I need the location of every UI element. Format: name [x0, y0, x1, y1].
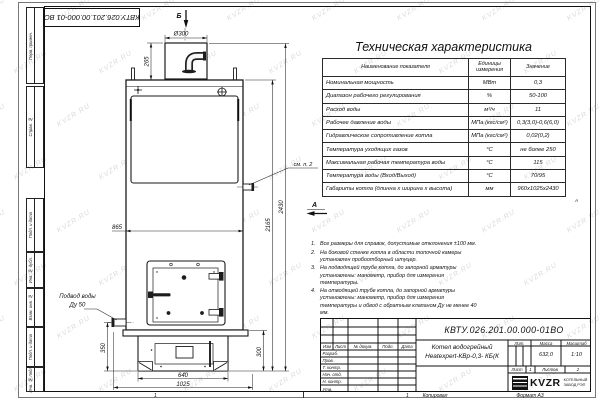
- spec-header-units: Единицы измерения: [469, 59, 511, 77]
- view-b-label: Б: [177, 13, 182, 20]
- spec-header-name: Наименование показателя: [323, 59, 469, 77]
- door-hinge-bottom: [209, 308, 224, 317]
- rev-col-list: Лист: [335, 344, 346, 349]
- kvzr-logo-icon: [512, 376, 528, 390]
- watermark-text: KVZR.RU: [0, 315, 7, 341]
- rev-col-podp: Подп.: [382, 344, 393, 349]
- spec-cell: °С: [469, 170, 511, 183]
- spec-cell: 0,3: [511, 77, 566, 90]
- spec-cell: 50-100: [511, 90, 566, 103]
- role-utv: Утв.: [323, 387, 333, 392]
- watermark-text: KVZR.RU: [0, 103, 7, 129]
- spec-cell: 0,02(0,2): [511, 130, 566, 143]
- spec-table-title: Техническая характеристика: [322, 40, 565, 55]
- title-block: Изм Лист № докум. Подп. Дата Разраб. Про…: [320, 318, 591, 392]
- svg-text:2430: 2430: [279, 200, 285, 215]
- sheets-label: Листов: [542, 367, 558, 372]
- product-name-line1: Котел водогрейный: [416, 343, 508, 352]
- spec-row: Диапазон рабочего регулирования%50-100: [323, 90, 566, 103]
- spec-cell: Диапазон рабочего регулирования: [323, 90, 469, 103]
- note-item: 2.На боковой стенке котла в области топо…: [311, 250, 481, 264]
- margin-box-podp-data-2: Подп. и дата: [26, 327, 44, 367]
- dim-shell-height: 2165: [245, 80, 276, 371]
- spec-cell: Номинальная мощность: [323, 77, 469, 90]
- spec-row: Рабочее давление водыМПа (кгс/см²)0,3(3,…: [323, 116, 566, 129]
- spec-cell: Температура уходящих газов: [323, 143, 469, 156]
- spec-table-body: Номинальная мощностьМВт0,3Диапазон рабоч…: [323, 77, 566, 197]
- lifting-pin-left: [132, 68, 135, 80]
- product-name-line2: Heatexpert-КВр-0,3- КБ(К: [416, 352, 508, 361]
- spec-cell: м³/ч: [469, 103, 511, 116]
- spec-row: Номинальная мощностьМВт0,3: [323, 77, 566, 90]
- margin-box-sprav-no: Справ. №: [26, 86, 44, 168]
- spec-cell: МВт: [469, 77, 511, 90]
- copied-label: Копировал: [415, 393, 455, 399]
- sheet-label: Лист: [511, 367, 522, 372]
- watermark-text: KVZR.RU: [0, 209, 7, 235]
- dim-flue-height: 265: [145, 43, 164, 80]
- format-label: Формат А3: [510, 393, 550, 399]
- spec-row: Гидравлическое сопротивление котлаМПа (к…: [323, 130, 566, 143]
- spec-cell: °С: [469, 156, 511, 169]
- svg-text:865: 865: [112, 225, 123, 231]
- rev-col-dokum: № докум.: [354, 344, 373, 349]
- margin-box-inv-podl: Инв. № подл.: [26, 367, 44, 392]
- svg-text:640: 640: [178, 373, 189, 379]
- dim-base-width: 640: [138, 372, 228, 382]
- watermark-text: KVZR.RU: [0, 0, 7, 22]
- margin-label: Подп. и дата: [28, 212, 33, 238]
- org-name: КОТЕЛЬНЫЙ ЗАВОД РЭП: [564, 378, 588, 387]
- spec-cell: 70/95: [511, 170, 566, 183]
- margin-label: Перв. примен.: [28, 32, 33, 60]
- margin-label: Взам. инв. №: [28, 294, 33, 320]
- sheets-value: 2: [577, 367, 579, 372]
- spec-cell: МПа (кгс/см²): [469, 116, 511, 129]
- spec-cell: 0,3(3,0)-0,6(6,0): [511, 116, 566, 129]
- rev-col-data: Дата: [401, 344, 412, 349]
- margin-box-inv-dubl: Инв. № дубл.: [26, 252, 44, 288]
- spec-cell: Габариты котла (длинна х ширина х высота…: [323, 183, 469, 196]
- door-hinge-top: [209, 272, 224, 281]
- note-item: 1.Все размеры для справок, допустимые от…: [311, 241, 481, 248]
- view-a-label: А: [311, 202, 317, 209]
- sheet-value: 1: [529, 367, 531, 372]
- see-note-callout: см. п. 2: [294, 162, 313, 168]
- doc-number: КВТУ.026.201.00.000-01ВО: [416, 319, 592, 340]
- lit-label: Лит.: [514, 341, 524, 346]
- margin-box-vzam-inv: Взам. инв. №: [26, 288, 44, 327]
- door-handle: [148, 292, 153, 299]
- manufacturer-logo: KVZR КОТЕЛЬНЫЙ ЗАВОД РЭП: [508, 373, 592, 393]
- product-name: Котел водогрейный Heatexpert-КВр-0,3- КБ…: [416, 343, 508, 361]
- spec-cell: °С: [469, 143, 511, 156]
- spec-cell: 960х1025х2430: [511, 183, 566, 196]
- spec-row: Температура воды (Вход/Выход)°С70/95: [323, 170, 566, 183]
- fold-tick: [303, 392, 304, 398]
- bottom-plate: [123, 330, 248, 336]
- spec-header-value: Значение: [511, 59, 566, 77]
- boiler-front-view: Б Ø300 265: [44, 6, 340, 392]
- spec-cell: мм: [469, 183, 511, 196]
- svg-text:265: 265: [145, 56, 151, 68]
- margin-label: Инв. № подл.: [28, 366, 33, 392]
- furnace-door: [147, 261, 225, 325]
- note-item: 3.На подводящей трубе котла, до запорной…: [311, 265, 481, 286]
- dim-flue-diameter: Ø300: [165, 32, 207, 43]
- svg-text:2165: 2165: [266, 218, 272, 233]
- rev-col-izm: Изм: [323, 344, 331, 349]
- upper-panel: [131, 96, 238, 183]
- role-n-kontr: Н. контр.: [323, 379, 342, 384]
- drawing-sheet: KVZR.RUKVZR.RUKVZR.RUKVZR.RUKVZR.RUKVZR.…: [0, 0, 600, 400]
- spec-row: Максимальная рабочая температура воды°С1…: [323, 156, 566, 169]
- margin-box-perv-primen: Перв. примен.: [26, 7, 44, 84]
- mass-label: Масса: [540, 341, 553, 346]
- margin-box-podp-data-1: Подп. и дата: [26, 198, 44, 252]
- dim-base-height: 300: [229, 331, 267, 372]
- lifting-pin-right: [234, 68, 237, 80]
- spec-header-row: Наименование показателя Единицы измерени…: [323, 59, 566, 77]
- spec-row: Расход водым³/ч11: [323, 103, 566, 116]
- svg-text:1025: 1025: [176, 382, 190, 388]
- spec-cell: МПа (кгс/см²): [469, 130, 511, 143]
- spec-cell: Температура воды (Вход/Выход): [323, 170, 469, 183]
- role-t-kontr: Т. контр.: [323, 365, 342, 370]
- spec-row: Габариты котла (длинна х ширина х высота…: [323, 183, 566, 196]
- spec-cell: %: [469, 90, 511, 103]
- note-item: 4.На отводящей трубе котла, до запорной …: [311, 288, 481, 317]
- view-a-arrow: А: [307, 202, 328, 216]
- water-inlet: Подвод воды Ду 50: [59, 294, 134, 327]
- scale-label: Масштаб: [566, 341, 586, 346]
- svg-text:300: 300: [257, 346, 263, 357]
- role-prov: Пров.: [323, 358, 334, 363]
- scale-value: 1:10: [571, 352, 582, 358]
- spec-table: Наименование показателя Единицы измерени…: [322, 58, 566, 197]
- spec-cell: 11: [511, 103, 566, 116]
- notes-list: 1.Все размеры для справок, допустимые от…: [311, 241, 481, 318]
- base-plinth: [138, 336, 228, 371]
- spec-cell: не более 250: [511, 143, 566, 156]
- margin-label: Справ. №: [28, 117, 33, 137]
- role-nach-otd: Нач. отд.: [323, 372, 342, 377]
- spec-cell: Расход воды: [323, 103, 469, 116]
- water-supply-callout: Подвод воды: [59, 294, 96, 300]
- view-b-arrow: Б: [177, 10, 189, 28]
- zone-letter: А: [575, 198, 578, 203]
- spec-cell: Рабочее давление воды: [323, 116, 469, 129]
- spec-row: Температура уходящих газов°Сне более 250: [323, 143, 566, 156]
- role-razrab: Разраб.: [323, 351, 339, 356]
- margin-label: Подп. и дата: [28, 334, 33, 360]
- spec-cell: 115: [511, 156, 566, 169]
- spec-cell: Максимальная рабочая температура воды: [323, 156, 469, 169]
- sampling-stub: см. п. 2: [237, 162, 318, 191]
- fold-mark-right: 1: [406, 393, 409, 399]
- fold-mark-left: 1: [154, 393, 157, 399]
- water-supply-dn: Ду 50: [69, 303, 86, 309]
- svg-text:Ø300: Ø300: [173, 32, 189, 38]
- spec-cell: Гидравлическое сопротивление котла: [323, 130, 469, 143]
- kvzr-logo-text: KVZR: [530, 377, 561, 389]
- svg-text:350: 350: [101, 342, 107, 353]
- spec-table-block: Техническая характеристика Наименование …: [322, 40, 565, 197]
- mass-value: 632,0: [539, 352, 553, 358]
- margin-label: Инв. № дубл.: [28, 257, 33, 283]
